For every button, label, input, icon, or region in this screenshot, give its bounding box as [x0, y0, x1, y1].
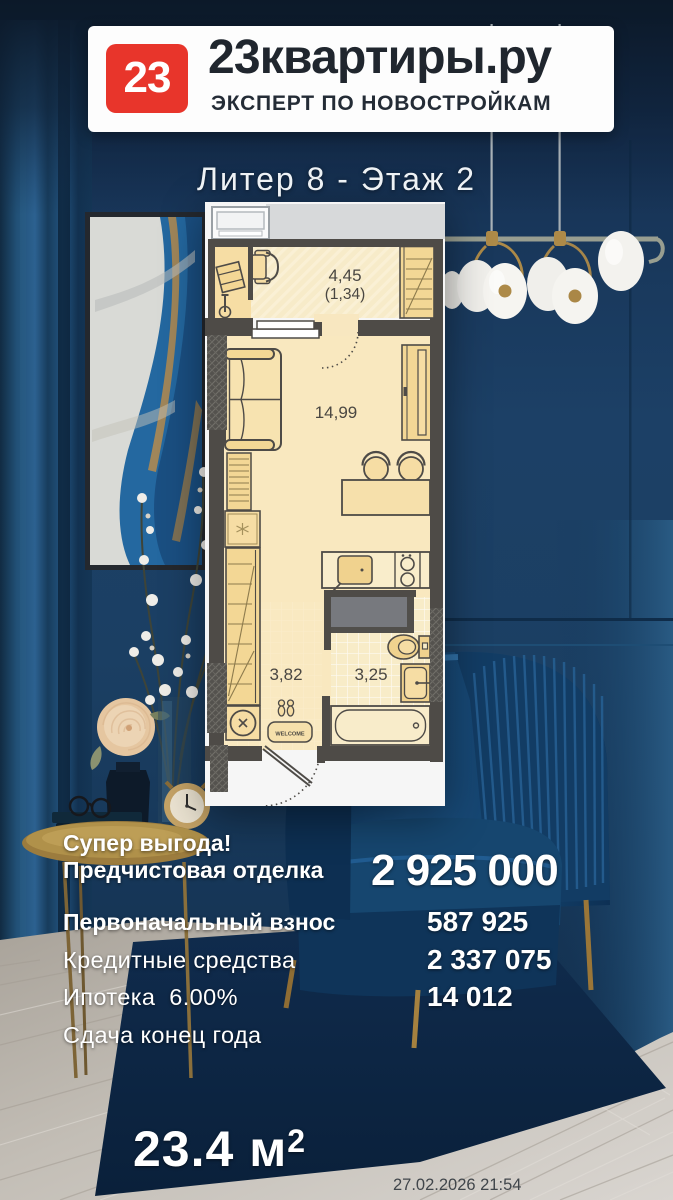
svg-text:(1,34): (1,34) [325, 286, 366, 303]
svg-text:3,25: 3,25 [354, 665, 387, 684]
svg-text:4,45: 4,45 [328, 266, 361, 285]
svg-text:3,82: 3,82 [269, 665, 302, 684]
svg-text:14,99: 14,99 [315, 403, 358, 422]
svg-text:WELCOME: WELCOME [275, 732, 304, 738]
